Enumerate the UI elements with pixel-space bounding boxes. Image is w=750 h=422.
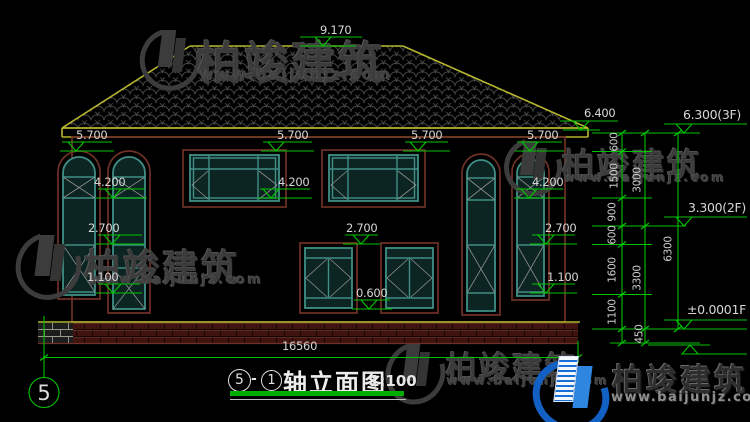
level-label-5700: 5.700 xyxy=(527,129,558,141)
level-label-2700: 2.700 xyxy=(88,222,119,234)
drawing-scale: 1:100 xyxy=(369,372,417,390)
chain-dim-3000: 3000 xyxy=(633,158,644,202)
level-label-4200: 4.200 xyxy=(94,176,125,188)
level-markers xyxy=(60,37,747,354)
axis-bubble-label: 5 xyxy=(33,381,55,405)
title-underline-thin xyxy=(230,399,406,400)
chain-dim-1600: 1600 xyxy=(608,248,619,292)
title-axis-to: 1 xyxy=(261,370,282,391)
level-label-1100: 1.100 xyxy=(87,271,118,283)
level-label-5700: 5.700 xyxy=(277,129,308,141)
level-label-2700: 2.700 xyxy=(545,222,576,234)
level-label-floor3: 6.300(3F) xyxy=(683,109,741,121)
level-label-ground: ±0.0001F xyxy=(687,304,746,316)
title-separator: - xyxy=(251,371,257,387)
chain-dim-3300: 3300 xyxy=(633,256,644,300)
chain-dim-1100: 1100 xyxy=(608,290,619,334)
title-axis-from: 5 xyxy=(228,369,251,392)
chain-dim-450: 450 xyxy=(635,312,646,356)
title-underline xyxy=(230,391,404,396)
level-label-4200: 4.200 xyxy=(532,176,563,188)
brand-logo xyxy=(530,352,612,422)
level-label-0600: 0.600 xyxy=(356,287,387,299)
chain-dim-6300: 6300 xyxy=(664,227,675,271)
level-label-floor2: 3.300(2F) xyxy=(688,202,746,214)
level-label-2700: 2.700 xyxy=(346,222,377,234)
level-label-eave: 6.400 xyxy=(584,107,615,119)
level-label-ridge: 9.170 xyxy=(320,24,351,36)
level-label-5700: 5.700 xyxy=(76,129,107,141)
cad-elevation-canvas: 柏竣建筑 www.baijunjz.com 柏竣建筑 www.baijunjz.… xyxy=(0,0,750,422)
dim-label-total-width: 16560 xyxy=(282,340,317,352)
level-label-4200: 4.200 xyxy=(278,176,309,188)
level-label-1100: 1.100 xyxy=(547,271,578,283)
brand-site: www.baijunjz.com xyxy=(611,390,750,405)
level-label-5700: 5.700 xyxy=(411,129,442,141)
